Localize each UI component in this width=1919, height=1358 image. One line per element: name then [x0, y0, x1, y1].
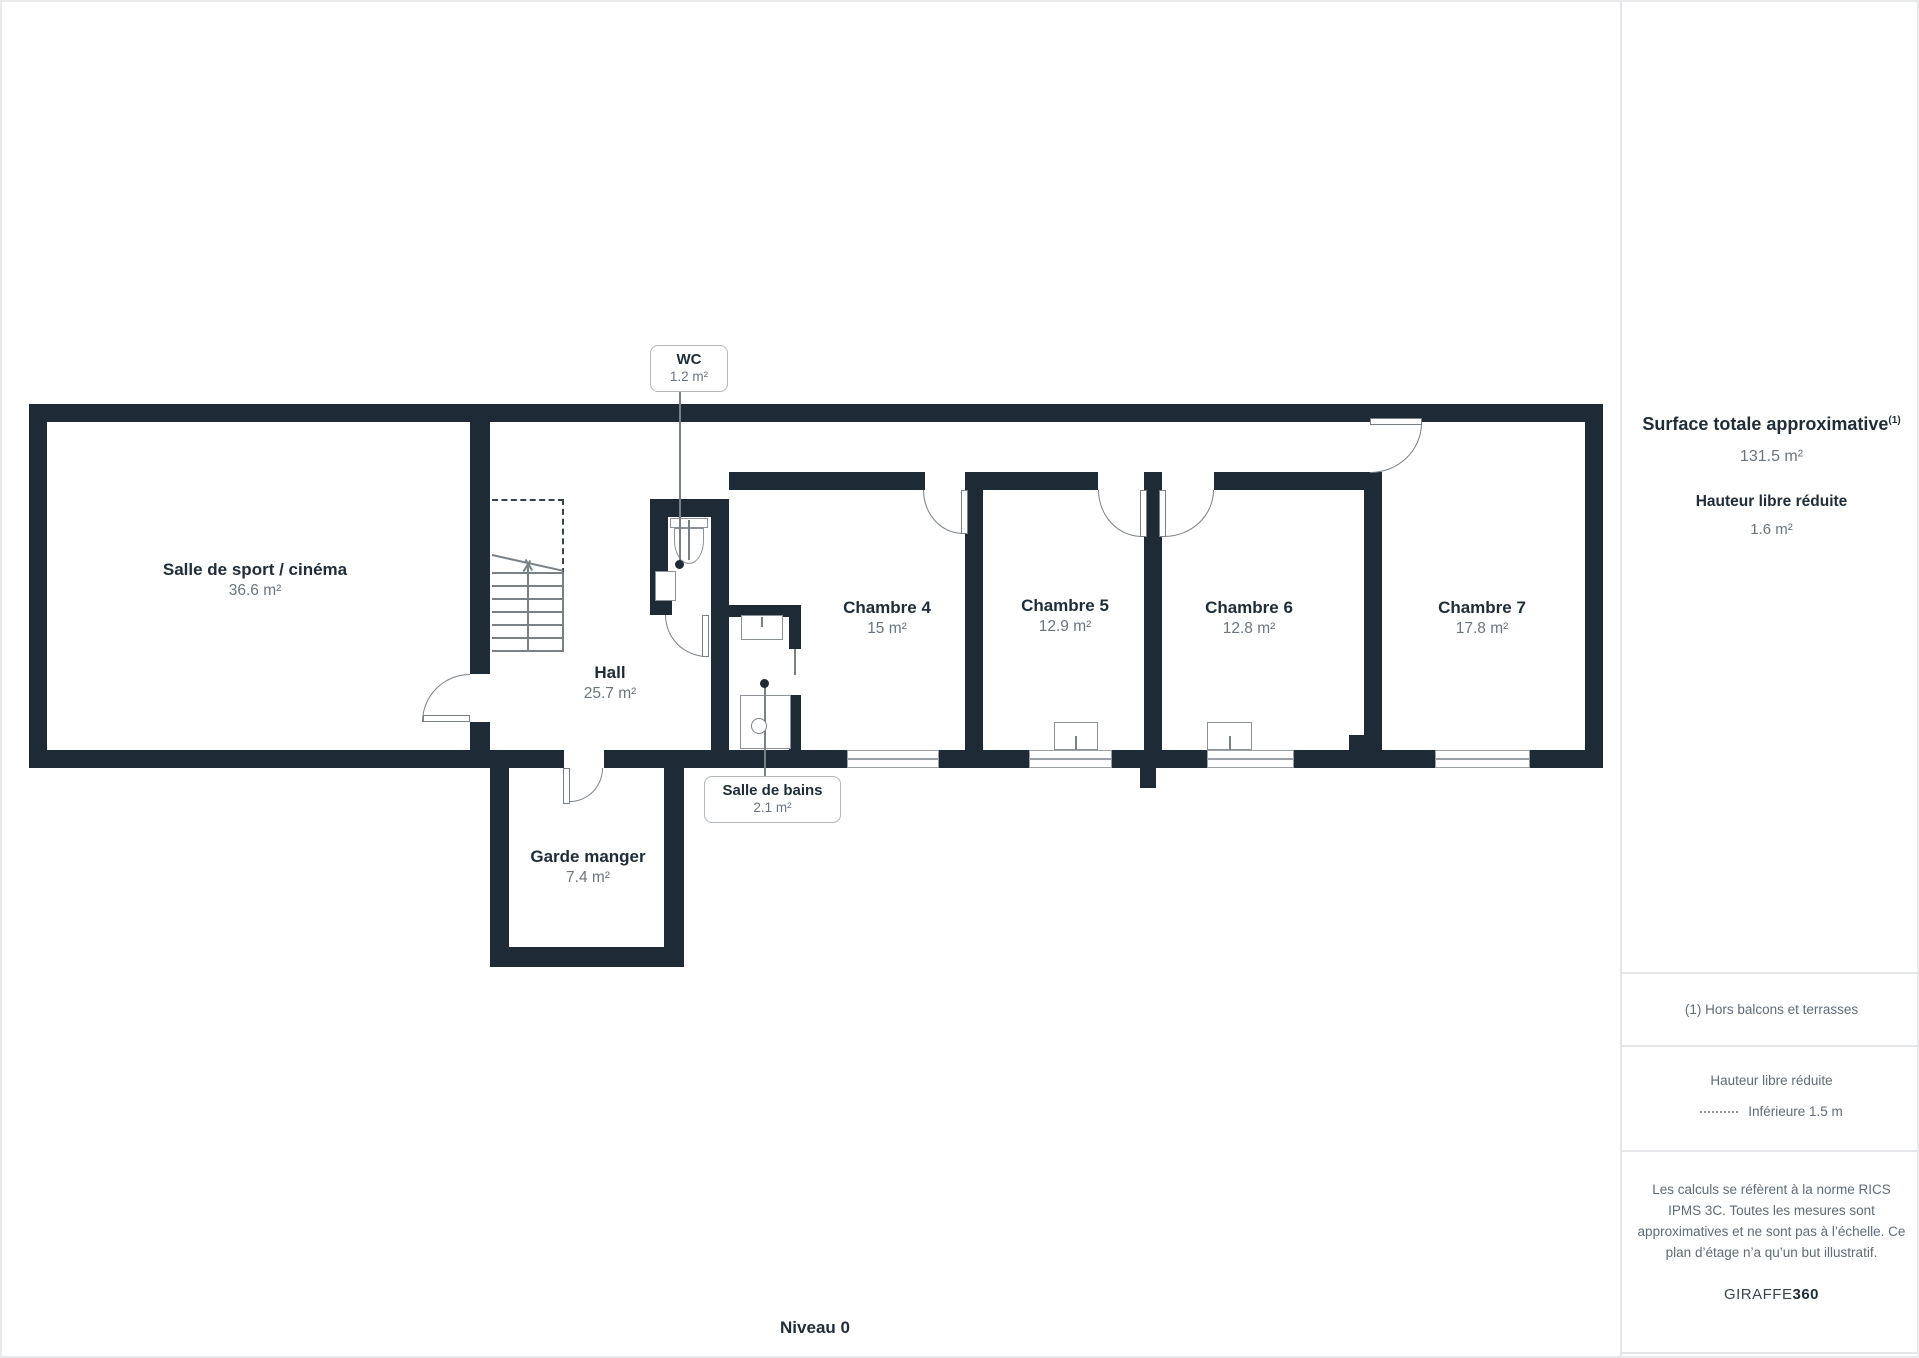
total-surface-label: Surface totale approximative [1642, 414, 1888, 434]
legend-item-label: Inférieure 1.5 m [1748, 1104, 1843, 1119]
room-label-chambre-7: Chambre 7 17.8 m² [1438, 597, 1526, 639]
door-opening-ch6 [1162, 472, 1214, 490]
room-area: 25.7 m² [584, 684, 637, 704]
door-arc-pantry [570, 768, 603, 802]
footnote-box: (1) Hors balcons et terrasses [1622, 972, 1919, 1045]
room-name: Chambre 7 [1438, 597, 1526, 619]
door-leaf-bath [794, 649, 796, 675]
wall-pantry-left [490, 768, 509, 967]
stairs-center-line [527, 564, 529, 652]
wall-right [1585, 422, 1603, 750]
wall-bath-right-a [789, 605, 801, 649]
window-ch7 [1435, 750, 1530, 768]
legend-box: Hauteur libre réduite Inférieure 1.5 m [1622, 1045, 1919, 1150]
wall-bedrooms-top [729, 472, 1364, 490]
shower-drain [751, 718, 767, 734]
footnote-text: (1) Hors balcons et terrasses [1685, 1002, 1858, 1017]
room-area: 1.2 m² [659, 369, 719, 385]
wall-wc-right [711, 499, 729, 750]
bath-sink-tick [761, 617, 763, 627]
room-area: 12.8 m² [1205, 619, 1293, 639]
dotted-line-icon [1700, 1111, 1738, 1113]
door-arc-gym [422, 674, 470, 722]
wall-ch6-ch7 [1364, 472, 1382, 750]
stairs-dashed-top [492, 499, 564, 501]
toilet-center-line [688, 520, 690, 560]
room-name: Chambre 6 [1205, 597, 1293, 619]
radiator-tick [1229, 736, 1231, 750]
wall-stub [1140, 768, 1156, 788]
disclaimer-box: Les calculs se réfèrent à la norme RICS … [1622, 1150, 1919, 1354]
wall-pantry-right [664, 768, 684, 967]
room-label-chambre-4: Chambre 4 15 m² [843, 597, 931, 639]
room-label-salle-de-sport: Salle de sport / cinéma 36.6 m² [163, 559, 347, 601]
total-surface-value: 131.5 m² [1622, 448, 1919, 466]
room-name: WC [659, 351, 719, 369]
leader-dot-wc [675, 560, 684, 569]
room-name: Chambre 5 [1021, 595, 1109, 617]
room-area: 7.4 m² [530, 868, 645, 888]
sidebar: Surface totale approximative(1) 131.5 m²… [1620, 2, 1919, 1356]
room-label-chambre-6: Chambre 6 12.8 m² [1205, 597, 1293, 639]
window-ch6 [1207, 750, 1294, 768]
room-area: 12.9 m² [1021, 617, 1109, 637]
disclaimer-text: Les calculs se réfèrent à la norme RICS … [1635, 1180, 1909, 1264]
room-name: Garde manger [530, 846, 645, 868]
door-arc-ch4 [923, 490, 963, 534]
room-label-box-salle-de-bains: Salle de bains 2.1 m² [704, 776, 841, 823]
window-ch5 [1029, 750, 1112, 768]
wall-left [29, 422, 47, 750]
reduced-height-label: Hauteur libre réduite [1622, 493, 1919, 511]
radiator-tick [1075, 736, 1077, 750]
leader-line-wc [679, 392, 681, 564]
room-area: 17.8 m² [1438, 619, 1526, 639]
wall-pantry-bottom [490, 947, 684, 967]
room-name: Salle de sport / cinéma [163, 559, 347, 581]
total-surface-title: Surface totale approximative(1) [1622, 414, 1919, 435]
stairs-dashed-right [562, 499, 564, 574]
door-arc-ch7 [1370, 423, 1422, 473]
room-label-garde-manger: Garde manger 7.4 m² [530, 846, 645, 888]
door-arc-wc [665, 615, 707, 657]
brand-name: GIRAFFE [1724, 1286, 1793, 1303]
legend-title: Hauteur libre réduite [1622, 1073, 1919, 1088]
room-label-box-wc: WC 1.2 m² [650, 345, 728, 392]
door-opening-ch5 [1098, 472, 1144, 490]
wall-bottom [29, 750, 1603, 768]
room-name: Hall [584, 662, 637, 684]
room-label-hall: Hall 25.7 m² [584, 662, 637, 704]
wall-stub [1349, 735, 1364, 750]
room-name: Chambre 4 [843, 597, 931, 619]
stairs-right-edge [562, 574, 564, 652]
giraffe360-logo: GIRAFFE360 [1622, 1286, 1919, 1303]
room-label-chambre-5: Chambre 5 12.9 m² [1021, 595, 1109, 637]
room-name: Salle de bains [713, 782, 832, 800]
level-label: Niveau 0 [780, 1318, 850, 1338]
leader-dot-bath [760, 679, 769, 688]
footnote-marker: (1) [1888, 415, 1900, 426]
wall-top [29, 404, 1603, 422]
door-opening-ch4 [925, 472, 965, 490]
room-area: 36.6 m² [163, 581, 347, 601]
door-opening-gym [470, 674, 490, 722]
reduced-height-value: 1.6 m² [1622, 521, 1919, 538]
door-opening-pantry [564, 750, 604, 768]
door-arc-ch6 [1164, 490, 1214, 537]
room-area: 15 m² [843, 619, 931, 639]
door-leaf-pantry [563, 768, 570, 804]
wc-sink [655, 571, 676, 601]
floorplan-page: WC 1.2 m² Salle de bains 2.1 m² Salle de… [0, 0, 1919, 1358]
window-ch4 [847, 750, 939, 768]
door-arc-ch5 [1098, 490, 1142, 537]
room-area: 2.1 m² [713, 800, 832, 816]
brand-suffix: 360 [1792, 1286, 1819, 1303]
